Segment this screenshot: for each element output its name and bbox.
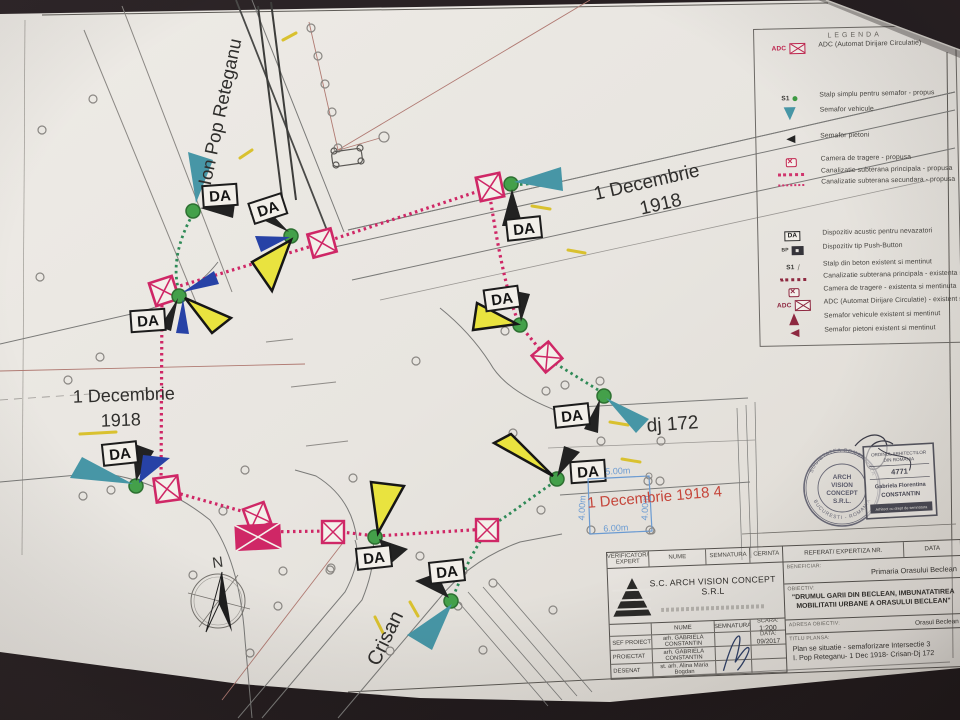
da-device-marker: DA <box>554 403 590 427</box>
existing-pedestrian-signal-icon <box>790 329 799 337</box>
photographed-traffic-plan: DA DA DA DA DA DA DA DA DA DA 5.00m 4.00… <box>0 0 960 720</box>
da-device-marker: DA <box>506 216 542 240</box>
push-button-icon <box>792 245 804 254</box>
legend-item: Canalizatie subterana secundara - propus… <box>757 175 958 193</box>
street-label-1-decembrie-w: 1 Decembrie <box>72 383 175 407</box>
concrete-pole-icon: / <box>797 263 799 272</box>
adc-existing-icon <box>795 299 811 310</box>
data-header: DATA <box>904 540 960 557</box>
da-device-marker: DA <box>356 545 392 569</box>
title-block: VERIFICATOR/ EXPERT NUME SEMNATURA CERIN… <box>606 539 960 680</box>
da-box-icon: DA <box>785 231 801 241</box>
name-proiectat: arh. GABRIELA CONSTANTIN <box>652 647 716 662</box>
simple-pole-icon <box>793 96 798 101</box>
adc-proposed-icon <box>789 42 805 53</box>
name-sef-proiect: arh. GABRIELA CONSTANTIN <box>652 633 716 648</box>
obiectiv-value: "DRUMUL GARII DIN BECLEAN, IMBUNATATIREA… <box>789 588 959 611</box>
da-device-marker: DA <box>130 309 165 332</box>
role-desenat: DESENAT <box>611 663 653 678</box>
dim-top: 5.00m <box>605 465 631 476</box>
existing-duct-icon <box>780 277 806 281</box>
svg-text:DA: DA <box>362 549 385 568</box>
company-address-line <box>661 604 764 612</box>
dim-bottom: 6.00m <box>603 522 629 533</box>
company-name: S.C. ARCH VISION CONCEPT S.R.L <box>646 573 780 598</box>
svg-text:DA: DA <box>137 312 160 330</box>
titlu-label: TITLU PLANSA: <box>789 635 830 642</box>
street-label-dj172: dj 172 <box>646 412 699 437</box>
da-device-marker: DA <box>429 559 465 583</box>
legend-item: Semafor pietoni existent si mentinut <box>760 323 960 341</box>
round-stamp-line: ARCH <box>833 474 852 481</box>
legend-item: BP Dispozitiv tip Push-Button <box>759 240 960 258</box>
role-sef-proiect: SEF PROIECT <box>610 635 652 650</box>
legend-panel: LEGENDA ADC ADC (Automat Dirijare Circul… <box>753 25 960 347</box>
nume-header: NUME <box>649 549 707 566</box>
role-proiectat: PROIECTAT <box>611 649 653 664</box>
adc-cabinet-solid <box>234 523 281 551</box>
cerinta-header: CERINTA <box>750 547 782 563</box>
secondary-duct-icon <box>778 184 804 187</box>
round-stamp-line: CONCEPT <box>826 490 857 497</box>
da-device-marker: DA <box>202 184 237 207</box>
data-value: 09/2017 <box>757 637 781 645</box>
name-desenat: st. arh. Alina Maria Bogdan <box>653 661 717 676</box>
svg-text:DA: DA <box>560 407 583 426</box>
svg-text:DA: DA <box>512 220 535 239</box>
legend-item: Semafor pietoni <box>756 129 957 147</box>
svg-text:DA: DA <box>108 445 131 464</box>
semnatura-subheader: SEMNATURA <box>715 620 751 632</box>
da-device-marker: DA <box>102 441 138 465</box>
vehicle-signal-icon <box>784 107 796 120</box>
arch-vision-logo <box>610 575 652 618</box>
pedestrian-signal-icon <box>786 135 795 143</box>
existing-vehicle-signal-icon <box>789 313 799 325</box>
architect-rect-stamp: ORDINUL ARHITECTILOR DIN ROMANIA 4771 Ga… <box>863 443 937 519</box>
rect-stamp-number: 4771 <box>891 467 908 477</box>
svg-text:DA: DA <box>490 290 514 310</box>
da-device-marker: DA <box>484 286 521 312</box>
svg-text:DA: DA <box>209 187 232 205</box>
main-duct-icon <box>778 172 804 176</box>
round-stamp-line: VISION <box>831 482 853 489</box>
existing-camera-icon <box>788 288 799 297</box>
legend-item: Semafor vehicule <box>756 103 957 121</box>
round-stamp-line: S.R.L. <box>833 498 851 505</box>
street-label-1918-w: 1918 <box>100 409 141 430</box>
scara-value: 1:200 <box>759 624 777 630</box>
obiectiv-label: OBIECTIV: <box>787 585 814 592</box>
svg-text:DA: DA <box>435 563 458 582</box>
camera-icon <box>785 158 796 167</box>
legend-item: ADC ADC (Automat Dirijare Circulatie) <box>754 38 955 56</box>
semnatura-header: SEMNATURA <box>706 548 750 564</box>
beneficiar-label: BENEFICIAR: <box>787 563 822 570</box>
